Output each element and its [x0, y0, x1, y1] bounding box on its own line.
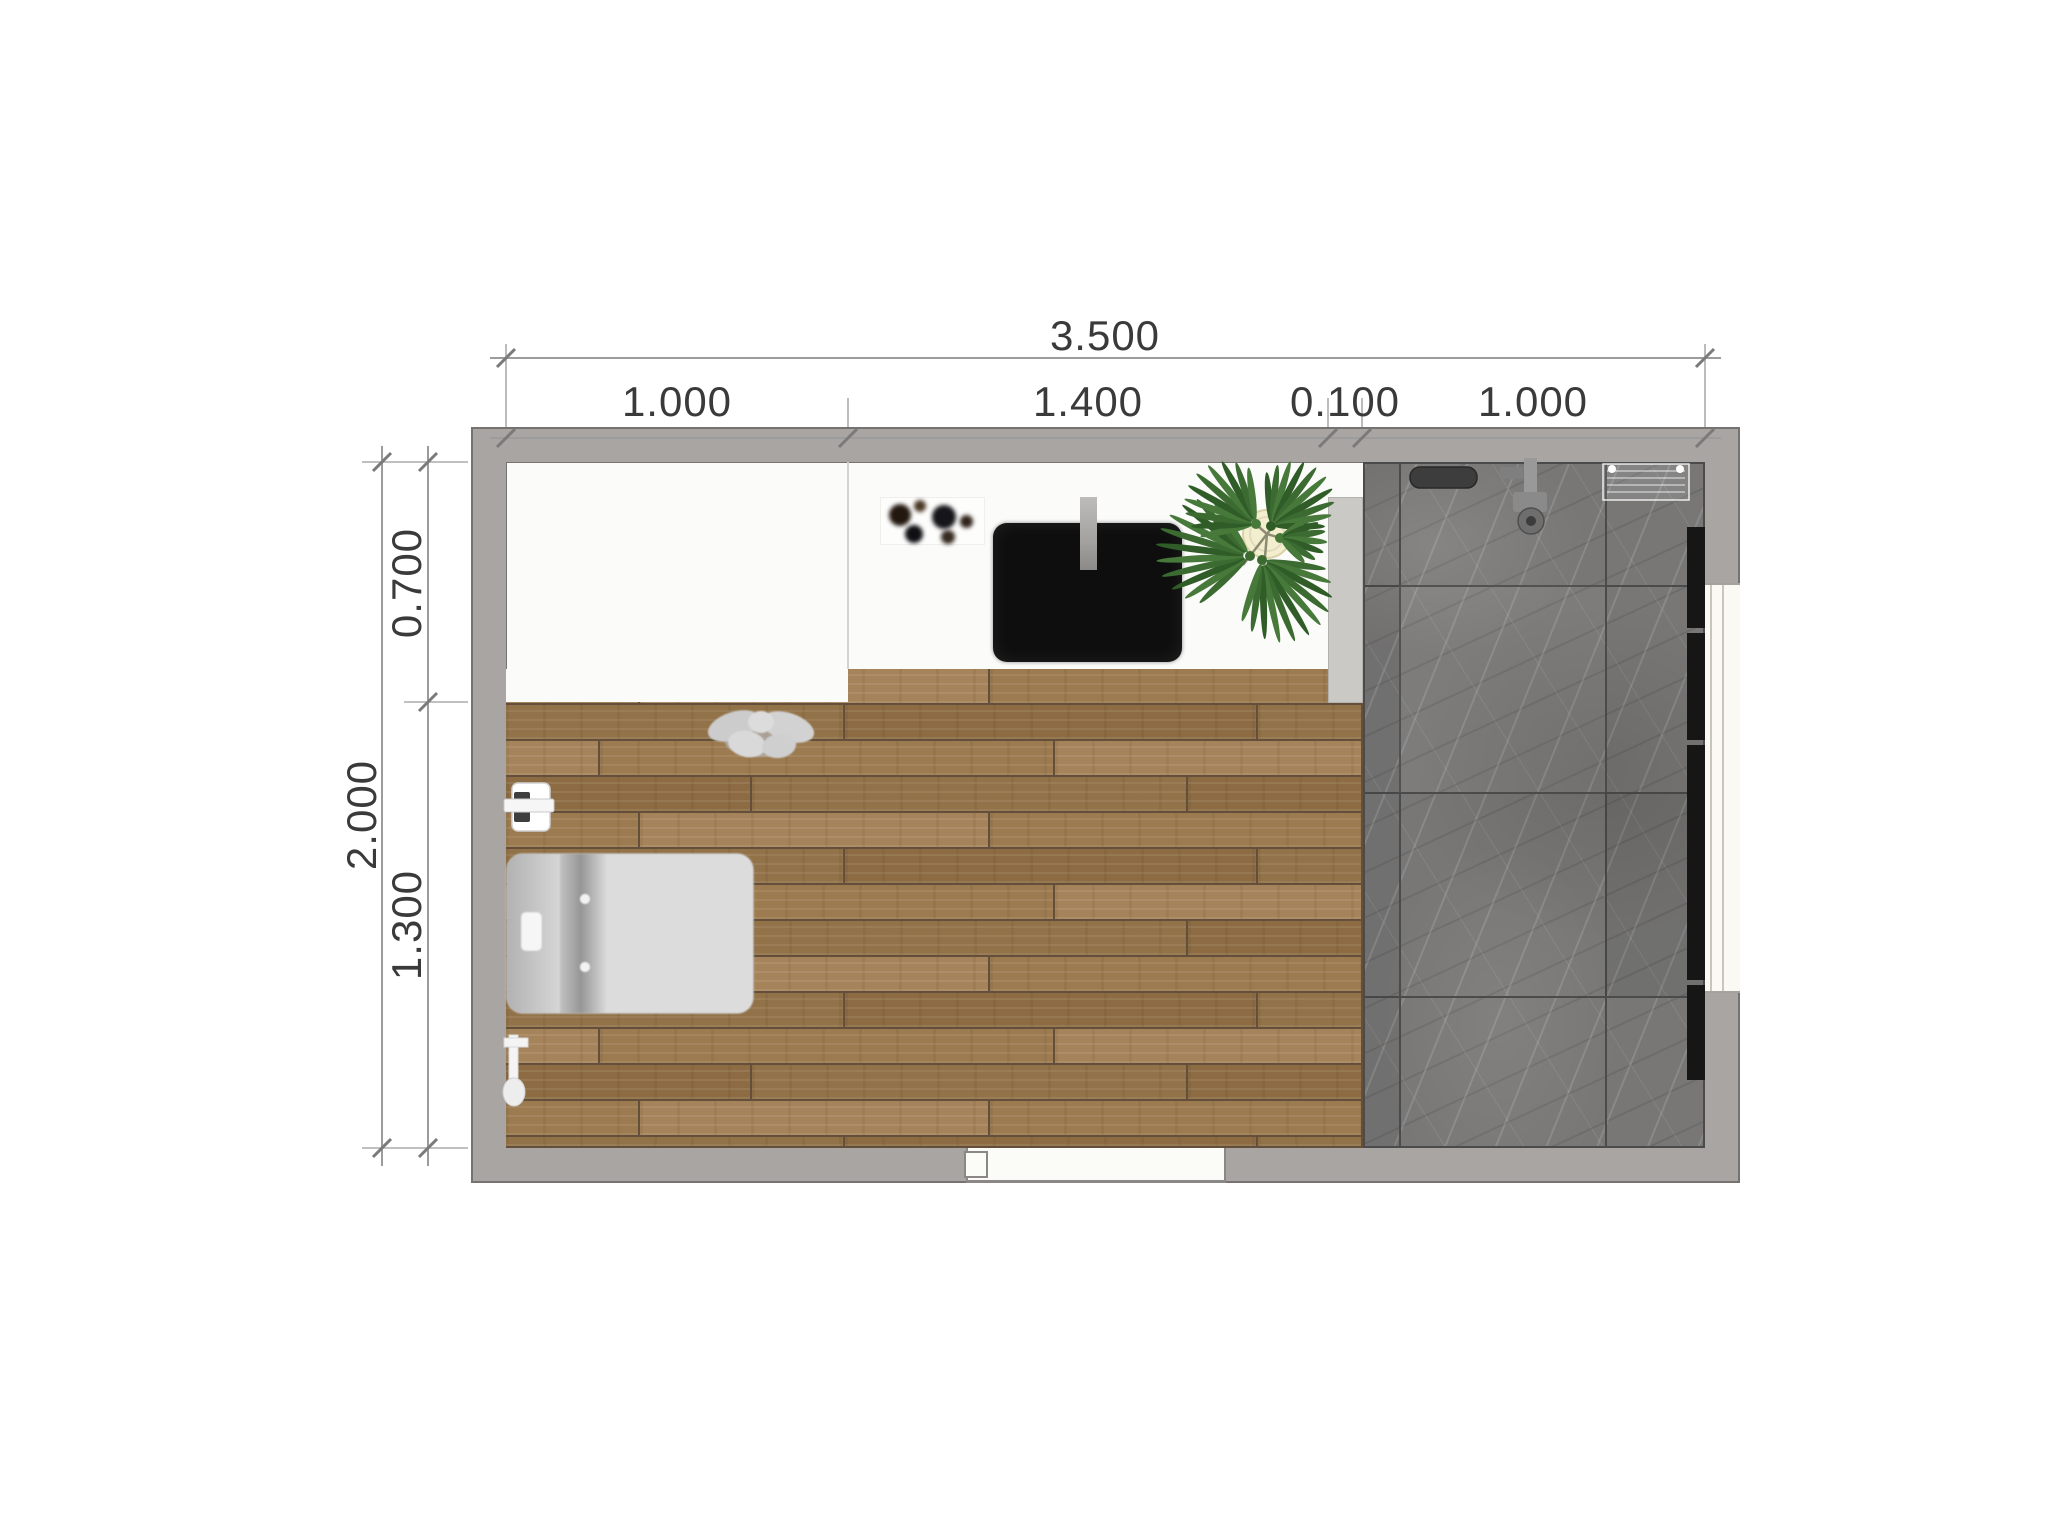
floor-plan-canvas: 3.500 1.000 1.400 0.100 1.000 2.000 0.70… [0, 0, 2048, 1536]
dim-left-seg-1: 0.700 [385, 483, 429, 683]
dim-top-seg-1: 1.000 [577, 380, 777, 424]
dim-left-total: 2.000 [340, 715, 384, 915]
dimension-lines [0, 0, 2048, 1536]
dim-top-seg-2: 1.400 [988, 380, 1188, 424]
dim-left-seg-2: 1.300 [385, 825, 429, 1025]
dim-top-total: 3.500 [1005, 314, 1205, 358]
dim-top-seg-4: 1.000 [1433, 380, 1633, 424]
dim-top-seg-3: 0.100 [1245, 380, 1445, 424]
